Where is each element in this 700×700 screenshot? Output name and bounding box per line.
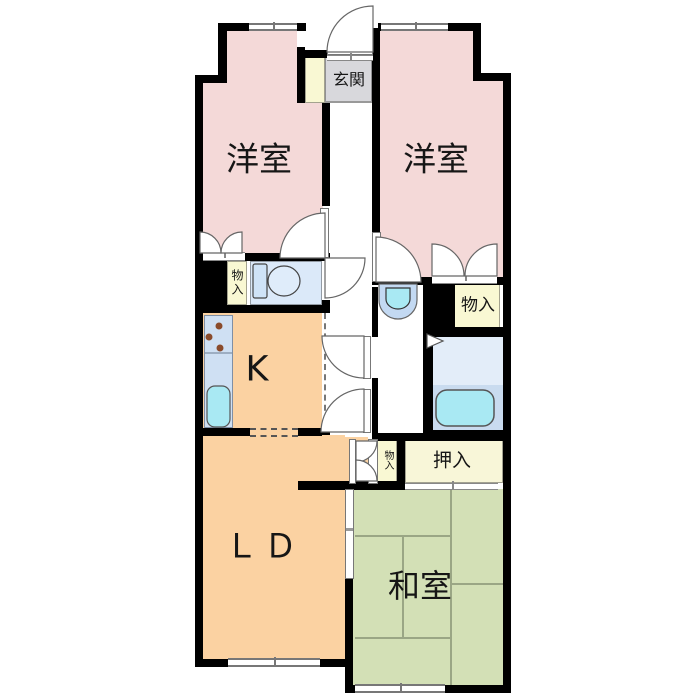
washroom-floor: [378, 284, 423, 433]
kitchen-hall-dashed-line: [324, 313, 326, 421]
window: [355, 684, 445, 693]
genkan-step-line: [325, 101, 372, 103]
window: [249, 23, 297, 31]
wall: [397, 440, 405, 482]
storage-small-jamb: [368, 439, 378, 484]
wall: [345, 578, 353, 663]
ld-door-leaf: [363, 389, 371, 433]
storage-right-label: 物入: [461, 298, 495, 315]
wall: [195, 75, 203, 667]
wall: [297, 428, 322, 436]
tatami-line: [355, 637, 451, 639]
western-room-right-label: 洋室: [403, 143, 469, 176]
wall: [305, 50, 327, 58]
shoe-closet: [305, 57, 325, 103]
wall: [473, 23, 481, 80]
kitchen-counter: [204, 315, 233, 428]
storage-small-door-leaf: [349, 439, 356, 484]
wall: [433, 284, 455, 331]
wall: [195, 428, 252, 436]
tatami-line: [451, 583, 503, 585]
living-dining-label: ＬＤ: [225, 530, 303, 563]
wall: [423, 430, 503, 438]
wall: [372, 287, 378, 337]
sliding-door-handle: [346, 528, 353, 531]
wall: [203, 261, 227, 305]
storage-left-label: 物入: [231, 269, 243, 297]
ld-washitsu-sliding-door: [345, 489, 354, 579]
wall: [372, 28, 380, 233]
wall: [503, 73, 511, 693]
window: [381, 23, 448, 31]
bathroom-floor-lower: [433, 385, 503, 430]
entry-threshold: [327, 55, 373, 61]
wall: [322, 421, 330, 435]
washroom-door-leaf: [363, 336, 371, 379]
wall: [203, 305, 330, 313]
oshiire-label: 押入: [433, 452, 471, 471]
wall: [218, 23, 227, 83]
closet-threshold: [432, 275, 497, 284]
living-dining-alcove: [322, 437, 368, 482]
floor-plan: 玄関 洋室 洋室 物入 K 物入 押入 物入 ＬＤ 和室: [0, 0, 700, 700]
window: [228, 658, 320, 667]
bathroom-floor-upper: [433, 337, 503, 385]
kitchen-pass-opening: [250, 428, 298, 437]
western-right-door-leaf: [372, 232, 381, 282]
kitchen-label: K: [246, 353, 269, 388]
genkan-label: 玄関: [333, 72, 365, 88]
storage-small-label: 物入: [382, 450, 392, 470]
wall: [372, 378, 378, 434]
closet-threshold: [203, 252, 245, 261]
oshiire-sliding-door: [405, 483, 498, 490]
western-left-door-leaf: [320, 208, 329, 258]
wall: [423, 277, 433, 433]
western-room-right-floor: [380, 30, 474, 80]
western-room-left-label: 洋室: [226, 143, 292, 176]
wall: [297, 47, 305, 103]
wall: [433, 327, 503, 337]
wall: [322, 103, 330, 206]
japanese-room-label: 和室: [388, 570, 452, 602]
toilet-floor: [250, 261, 322, 305]
